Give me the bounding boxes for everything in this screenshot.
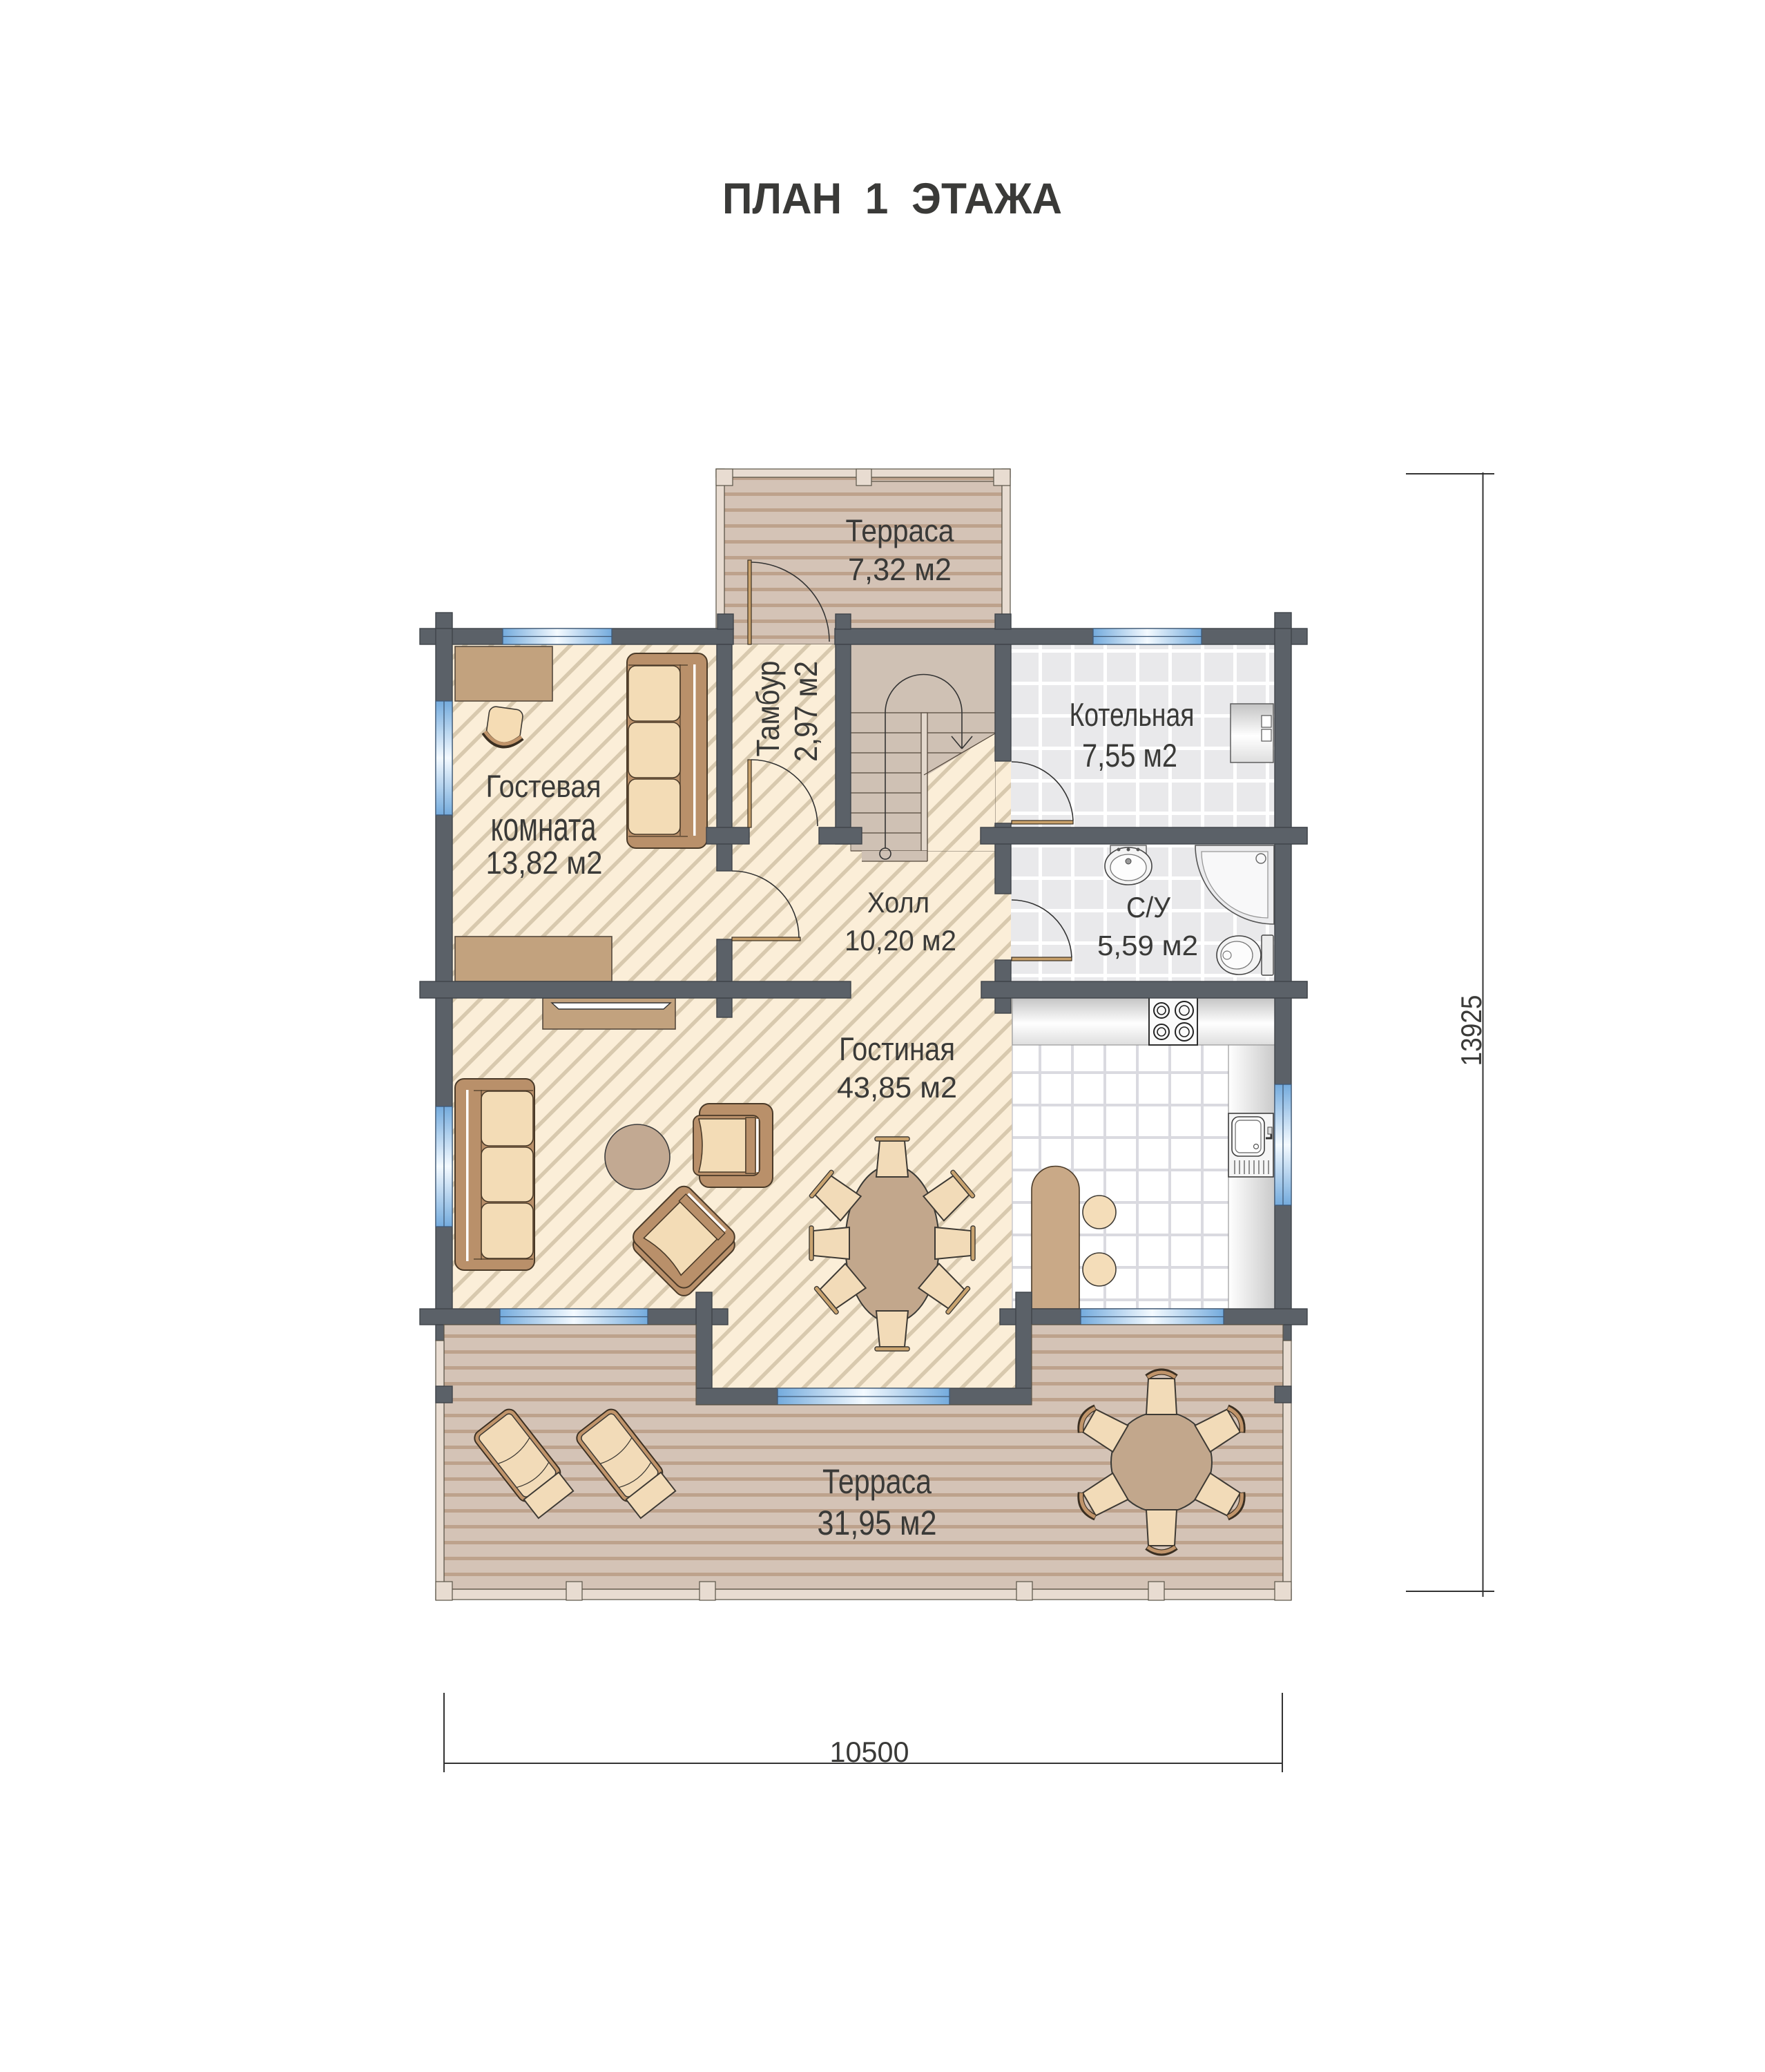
- svg-text:43,85 м2: 43,85 м2: [837, 1071, 957, 1104]
- svg-text:7,55 м2: 7,55 м2: [1082, 737, 1177, 774]
- svg-text:2,97 м2: 2,97 м2: [788, 661, 824, 762]
- svg-text:Гостевая: Гостевая: [486, 769, 601, 804]
- svg-text:Котельная: Котельная: [1070, 696, 1195, 733]
- svg-text:10,20 м2: 10,20 м2: [845, 924, 956, 957]
- svg-text:ПЛАН 1 ЭТАЖА: ПЛАН 1 ЭТАЖА: [722, 175, 1062, 223]
- svg-text:Холл: Холл: [867, 886, 929, 919]
- svg-text:Тамбур: Тамбур: [750, 661, 786, 757]
- svg-text:7,32 м2: 7,32 м2: [848, 552, 952, 587]
- svg-text:31,95 м2: 31,95 м2: [818, 1504, 937, 1542]
- svg-text:комната: комната: [491, 805, 597, 850]
- svg-text:5,59 м2: 5,59 м2: [1097, 930, 1198, 961]
- svg-text:Терраса: Терраса: [822, 1462, 932, 1501]
- svg-text:Гостиная: Гостиная: [839, 1030, 955, 1067]
- svg-text:Терраса: Терраса: [846, 513, 955, 548]
- svg-text:13,82 м2: 13,82 м2: [486, 845, 603, 881]
- svg-text:13925: 13925: [1455, 995, 1487, 1066]
- svg-text:С/У: С/У: [1126, 891, 1170, 923]
- svg-text:10500: 10500: [830, 1736, 909, 1768]
